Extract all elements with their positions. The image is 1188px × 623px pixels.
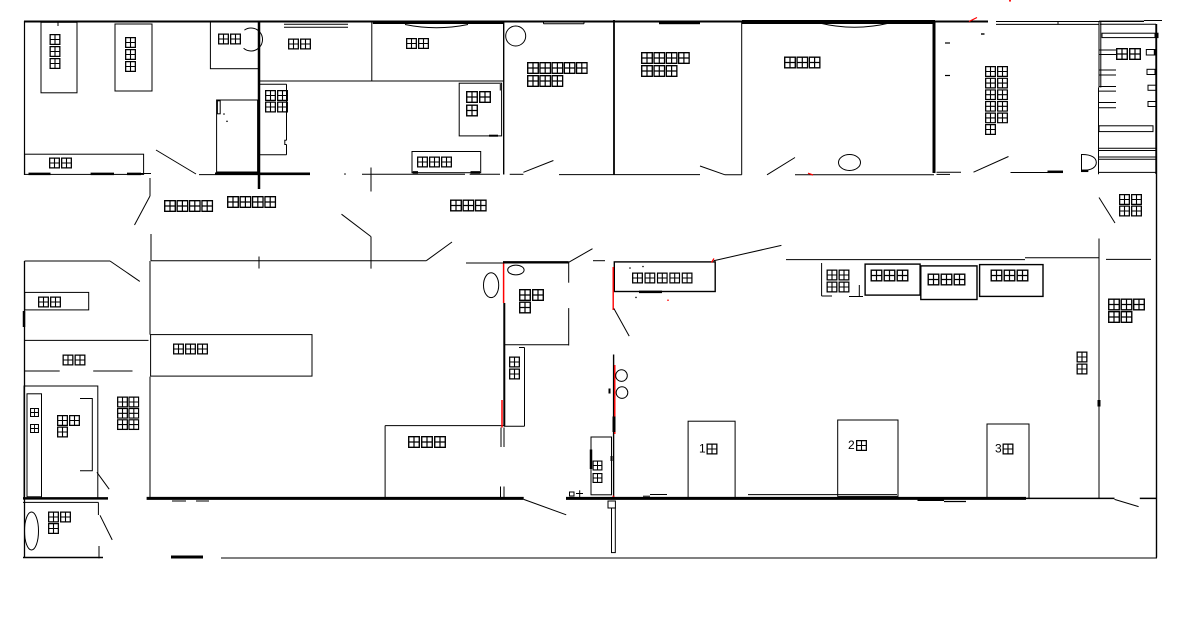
svg-text:3: 3 — [995, 442, 1002, 456]
svg-text:1: 1 — [699, 442, 706, 456]
svg-text:2: 2 — [848, 438, 855, 452]
